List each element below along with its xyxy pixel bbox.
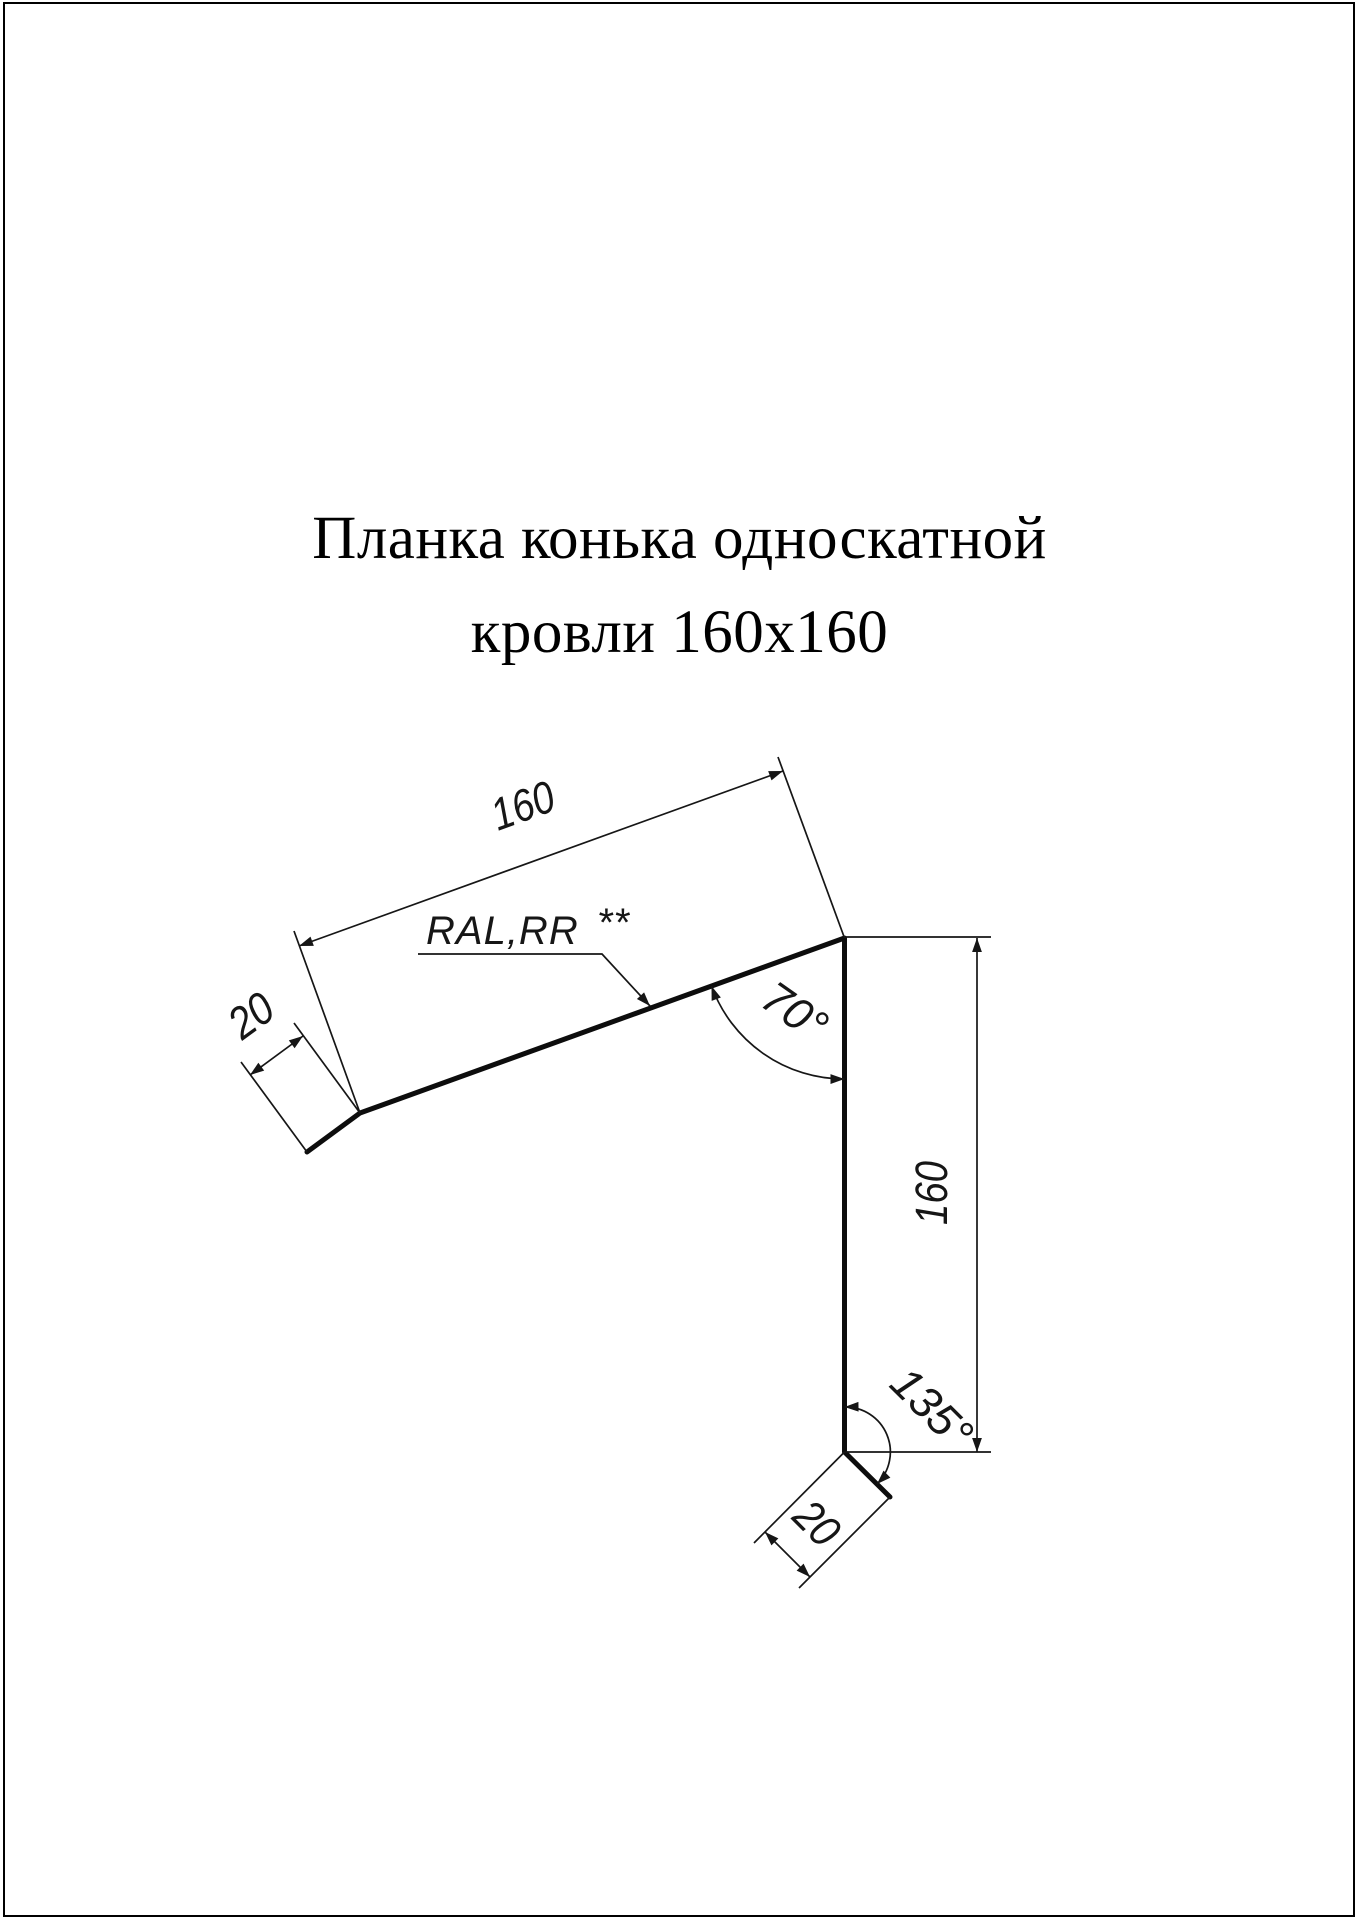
- extension-line-slope-left: [294, 931, 360, 1113]
- material-label: RAL,RR **: [426, 901, 630, 953]
- material-label-stars: **: [597, 901, 631, 945]
- extension-line-hem-left-a: [294, 1023, 360, 1113]
- page: { "title": { "line1": "Планка конька одн…: [0, 0, 1359, 1920]
- extension-line-slope-right: [778, 757, 845, 938]
- technical-drawing: 160 20 RAL,RR ** 70° 160 135° 20: [0, 0, 1359, 1920]
- dim-label-hem-left: 20: [217, 982, 283, 1050]
- angle-label-top: 70°: [752, 971, 837, 1052]
- material-label-text: RAL,RR: [426, 909, 579, 953]
- dim-label-vertical-length: 160: [906, 1161, 957, 1225]
- angle-label-bottom: 135°: [881, 1357, 984, 1460]
- leader-line-material: [418, 954, 650, 1006]
- dim-label-slope-length: 160: [484, 771, 562, 841]
- extension-line-hem-left-b: [241, 1062, 307, 1152]
